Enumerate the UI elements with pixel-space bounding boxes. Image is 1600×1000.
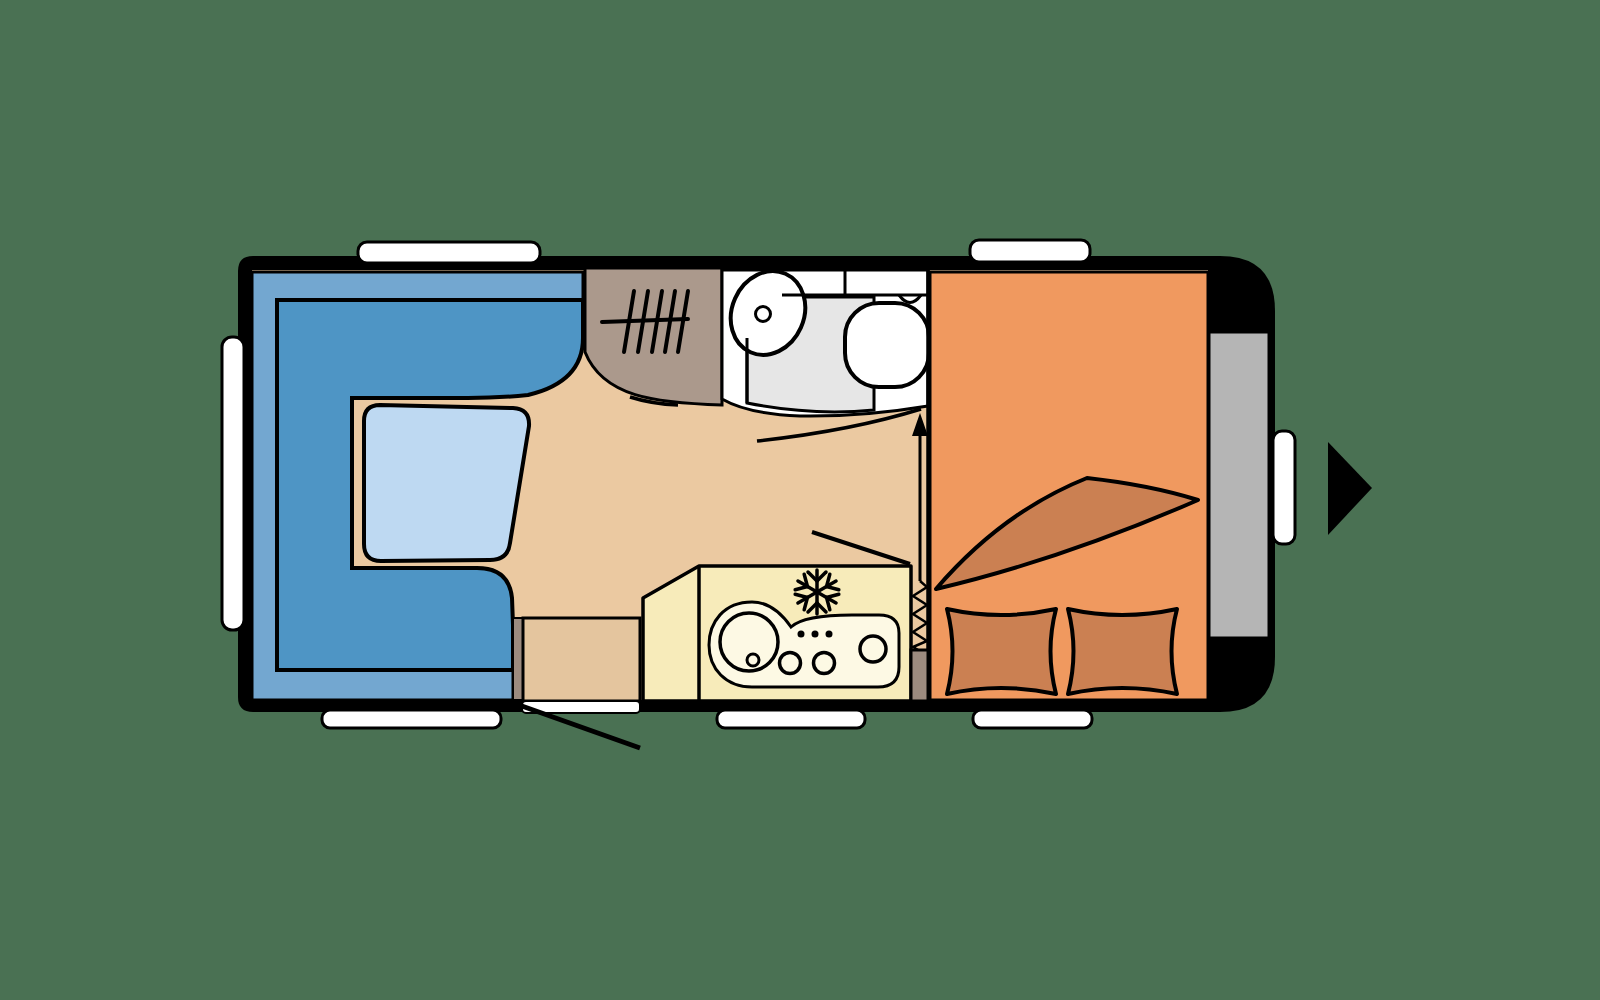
- pillow-left: [947, 609, 1056, 694]
- partition-post: [911, 650, 928, 701]
- floorplan-stage: [0, 0, 1600, 1000]
- window-top-right: [970, 240, 1090, 262]
- window-top-left: [358, 242, 540, 263]
- window-rear: [222, 337, 244, 630]
- window-bottom-right: [973, 710, 1092, 728]
- entrance-door: [523, 618, 640, 701]
- caravan-floorplan: [0, 0, 1600, 1000]
- window-bottom-left: [322, 710, 501, 728]
- dinette-table: [364, 405, 529, 561]
- pillow-right: [1068, 609, 1177, 694]
- front-storage-locker: [1209, 332, 1269, 638]
- hob-knob-3: [826, 631, 833, 638]
- hob-knob-2: [812, 631, 819, 638]
- window-bottom-middle: [717, 710, 865, 728]
- toilet-bowl: [845, 303, 929, 387]
- hob-knob-1: [798, 631, 805, 638]
- window-front: [1273, 431, 1295, 544]
